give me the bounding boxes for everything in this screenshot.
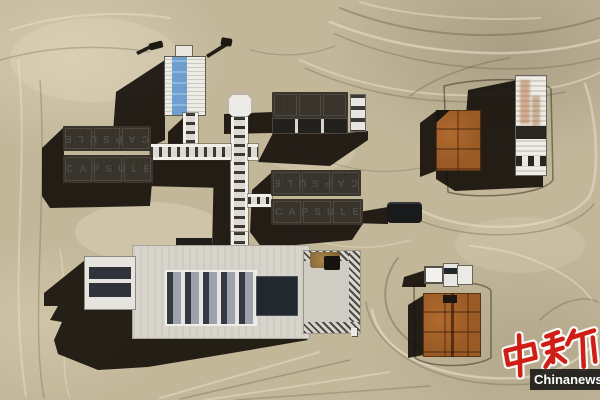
north-module-roof-tab bbox=[176, 46, 192, 57]
capsule-label: CAPSULE bbox=[271, 199, 363, 225]
corridor-vertical-main bbox=[231, 117, 248, 249]
pickup-bed bbox=[424, 266, 444, 284]
chinanews-bar: Chinanews.com bbox=[530, 369, 600, 390]
capsule-row-west-bottom: CAPSULE bbox=[63, 155, 153, 183]
aerial-desert-base-photo: CAPSULE CAPSULE CAPSULE CAPSULE bbox=[0, 0, 600, 400]
capsule-cell bbox=[299, 94, 322, 116]
rust-container-south bbox=[423, 293, 481, 357]
pickup-cab bbox=[444, 264, 458, 286]
white-container-north bbox=[516, 76, 546, 175]
capsule-label: CAPSULE bbox=[63, 126, 151, 151]
pickup-hood bbox=[458, 266, 472, 284]
deck-railing-east bbox=[349, 251, 360, 333]
suv-dark bbox=[387, 202, 422, 223]
ground-object-north-2 bbox=[220, 37, 232, 47]
north-building-blue-roof bbox=[165, 57, 205, 115]
container-dark-band bbox=[516, 126, 546, 139]
container-rust-streak bbox=[532, 96, 540, 126]
capsule-row-east-bottom: CAPSULE bbox=[271, 199, 363, 225]
annex-dark-panel bbox=[89, 283, 131, 297]
capsule-cell bbox=[323, 94, 346, 116]
rust-container-north bbox=[436, 110, 481, 171]
corridor-stub-east bbox=[248, 144, 258, 160]
capsule-label: CAPSULE bbox=[271, 170, 361, 196]
ne-container-front bbox=[272, 118, 348, 134]
connector-corridor-north bbox=[183, 113, 198, 147]
capsule-label: CAPSULE bbox=[63, 155, 153, 183]
hub-node-octagon bbox=[227, 93, 253, 119]
rust-south-hatch bbox=[443, 295, 457, 303]
container-rust-streak bbox=[520, 80, 530, 124]
small-white-object bbox=[351, 328, 357, 336]
ground-object-north-1 bbox=[148, 40, 163, 50]
chinanews-site-text: Chinanews.com bbox=[534, 372, 600, 387]
containers-north-east bbox=[272, 92, 366, 134]
ne-container-side-unit bbox=[350, 94, 366, 132]
capsule-row-west-top: CAPSULE bbox=[63, 126, 151, 151]
corridor-horizontal-west bbox=[150, 144, 231, 160]
rust-north-notch bbox=[436, 110, 450, 123]
annex-dark-panel bbox=[89, 267, 131, 279]
ne-container-tops bbox=[272, 92, 348, 118]
pickup-windshield bbox=[444, 268, 458, 274]
corridor-stub-mid bbox=[248, 194, 272, 207]
capsule-cell bbox=[274, 94, 297, 116]
pickup-truck bbox=[424, 264, 472, 286]
roof-blue-stripe bbox=[172, 57, 187, 115]
south-building-skylights bbox=[167, 272, 255, 324]
capsule-row-east-top: CAPSULE bbox=[271, 170, 361, 196]
south-building-dark-glass bbox=[256, 276, 298, 316]
container-checker-band bbox=[516, 156, 546, 166]
deck-dark-object bbox=[324, 256, 340, 270]
south-west-annex bbox=[85, 257, 135, 309]
